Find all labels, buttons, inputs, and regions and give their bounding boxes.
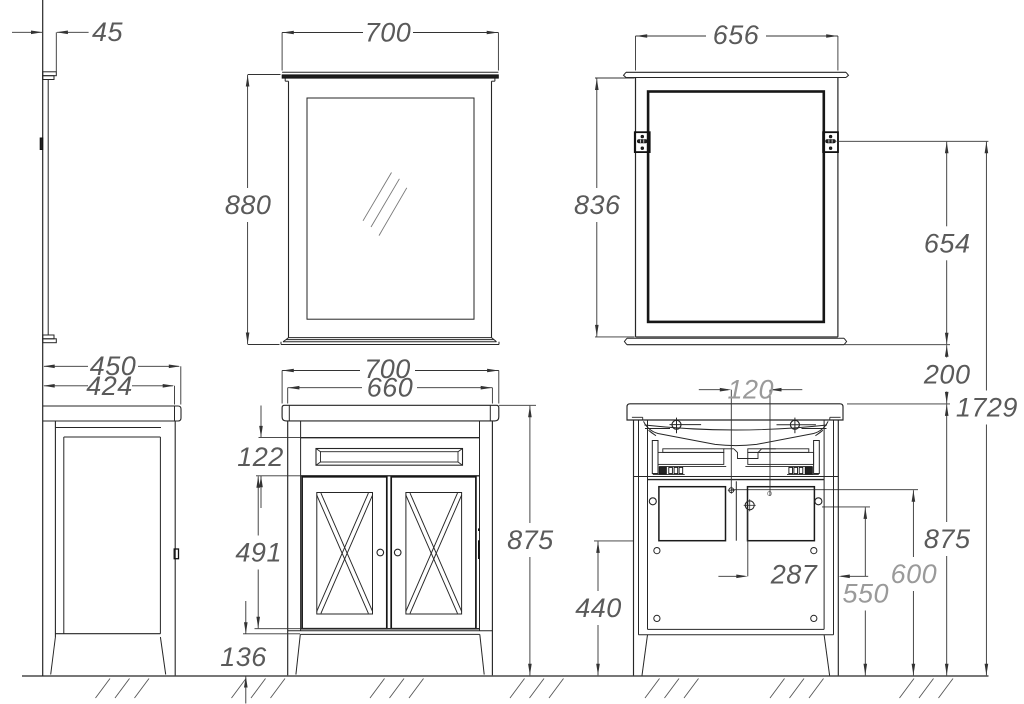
svg-text:122: 122	[237, 442, 284, 472]
svg-text:491: 491	[235, 538, 282, 568]
svg-text:880: 880	[225, 190, 272, 220]
svg-text:654: 654	[924, 228, 971, 258]
svg-text:550: 550	[843, 579, 890, 609]
svg-text:700: 700	[365, 17, 412, 47]
svg-text:600: 600	[891, 559, 938, 589]
svg-text:836: 836	[574, 190, 621, 220]
svg-text:136: 136	[220, 642, 267, 672]
svg-text:287: 287	[770, 560, 818, 590]
svg-text:875: 875	[924, 524, 971, 554]
svg-text:120: 120	[728, 375, 775, 405]
svg-text:656: 656	[713, 20, 760, 50]
svg-text:424: 424	[86, 371, 133, 401]
svg-text:45: 45	[92, 17, 124, 47]
svg-text:200: 200	[923, 360, 971, 390]
svg-text:1729: 1729	[956, 393, 1018, 423]
svg-text:440: 440	[575, 593, 622, 623]
svg-text:875: 875	[507, 525, 554, 555]
svg-text:660: 660	[367, 372, 414, 402]
